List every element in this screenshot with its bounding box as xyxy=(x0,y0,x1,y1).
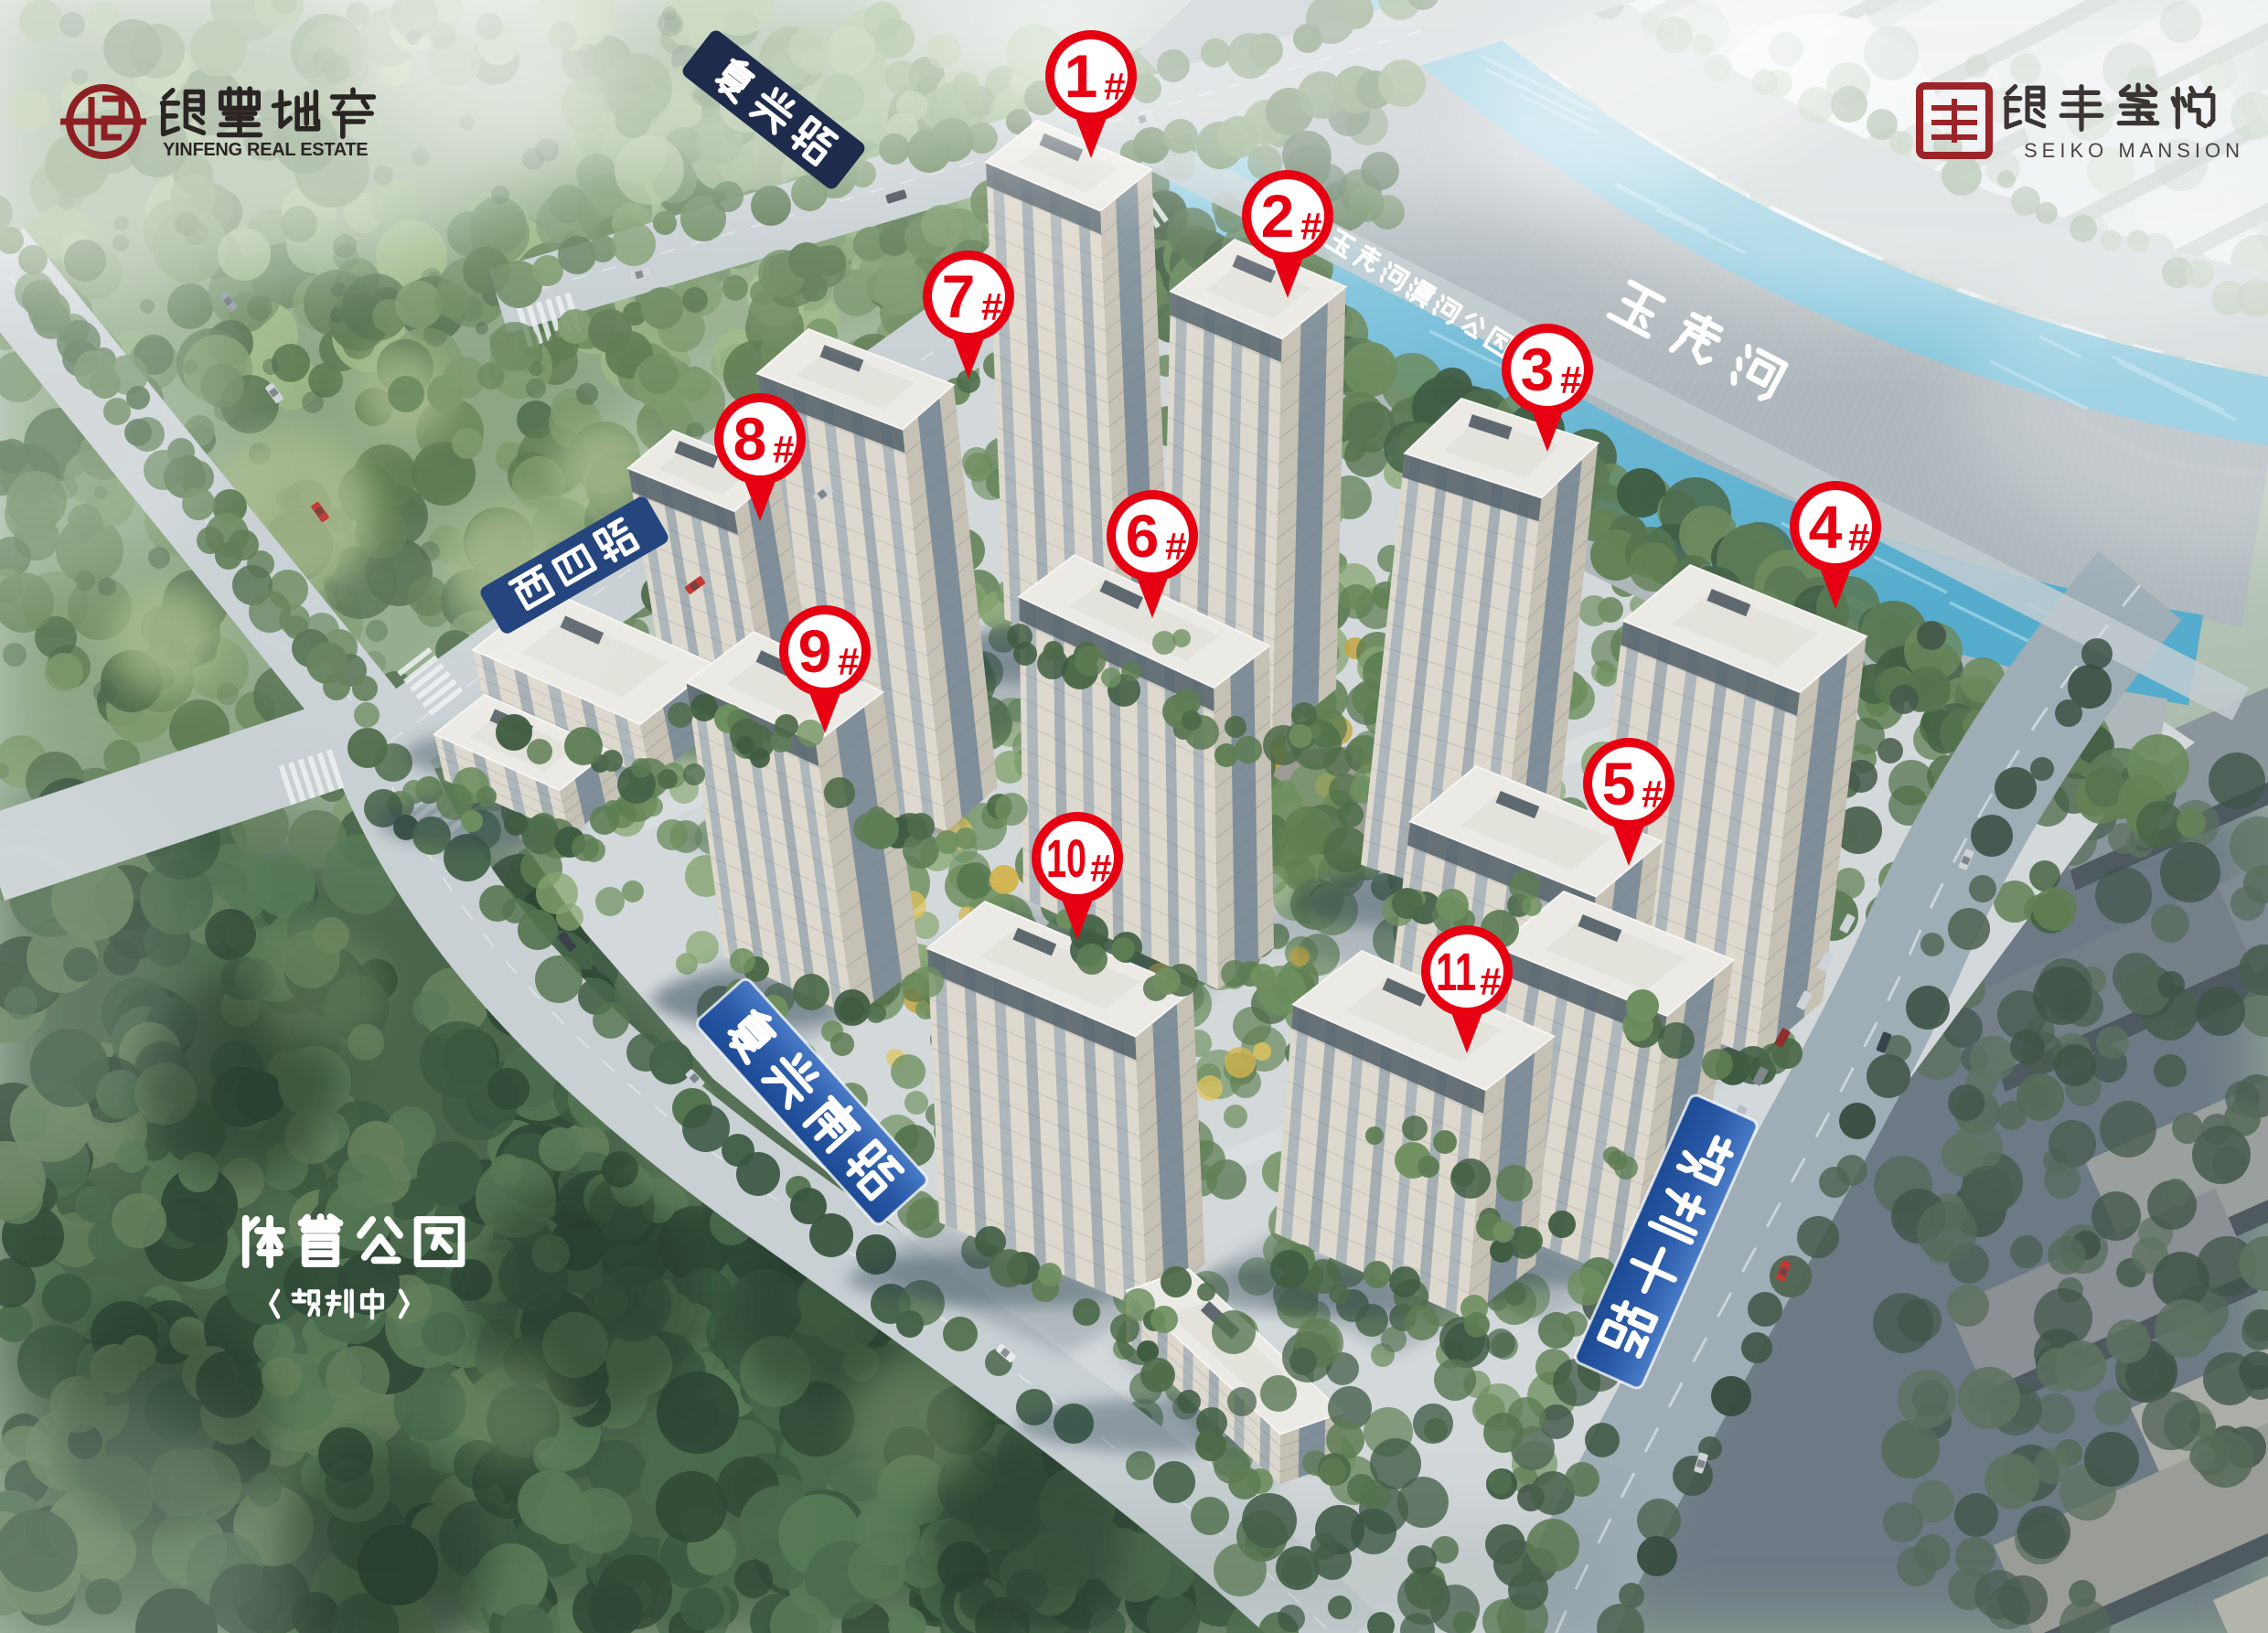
svg-text:11: 11 xyxy=(1436,943,1476,1002)
svg-text:#: # xyxy=(1104,65,1125,108)
svg-text:7: 7 xyxy=(942,262,976,330)
svg-text:5: 5 xyxy=(1602,750,1636,817)
svg-text:SEIKO MANSION: SEIKO MANSION xyxy=(2024,139,2244,162)
svg-text:3: 3 xyxy=(1521,336,1555,403)
svg-text:2: 2 xyxy=(1261,182,1295,250)
svg-text:#: # xyxy=(1642,773,1663,816)
svg-text:6: 6 xyxy=(1126,502,1160,570)
svg-text:10: 10 xyxy=(1046,829,1086,889)
svg-text:#: # xyxy=(773,428,794,471)
svg-text:#: # xyxy=(981,285,1002,328)
svg-text:4: 4 xyxy=(1809,493,1843,560)
svg-text:#: # xyxy=(1090,847,1111,890)
svg-text:8: 8 xyxy=(733,405,767,473)
svg-text:YINFENG REAL ESTATE: YINFENG REAL ESTATE xyxy=(163,140,368,160)
svg-text:9: 9 xyxy=(798,617,832,685)
svg-text:#: # xyxy=(1480,960,1501,1003)
svg-text:#: # xyxy=(1165,525,1186,568)
svg-text:#: # xyxy=(838,640,859,683)
svg-text:#: # xyxy=(1300,205,1321,248)
svg-text:#: # xyxy=(1848,516,1869,559)
svg-text:1: 1 xyxy=(1064,42,1098,110)
svg-text:#: # xyxy=(1560,358,1581,401)
